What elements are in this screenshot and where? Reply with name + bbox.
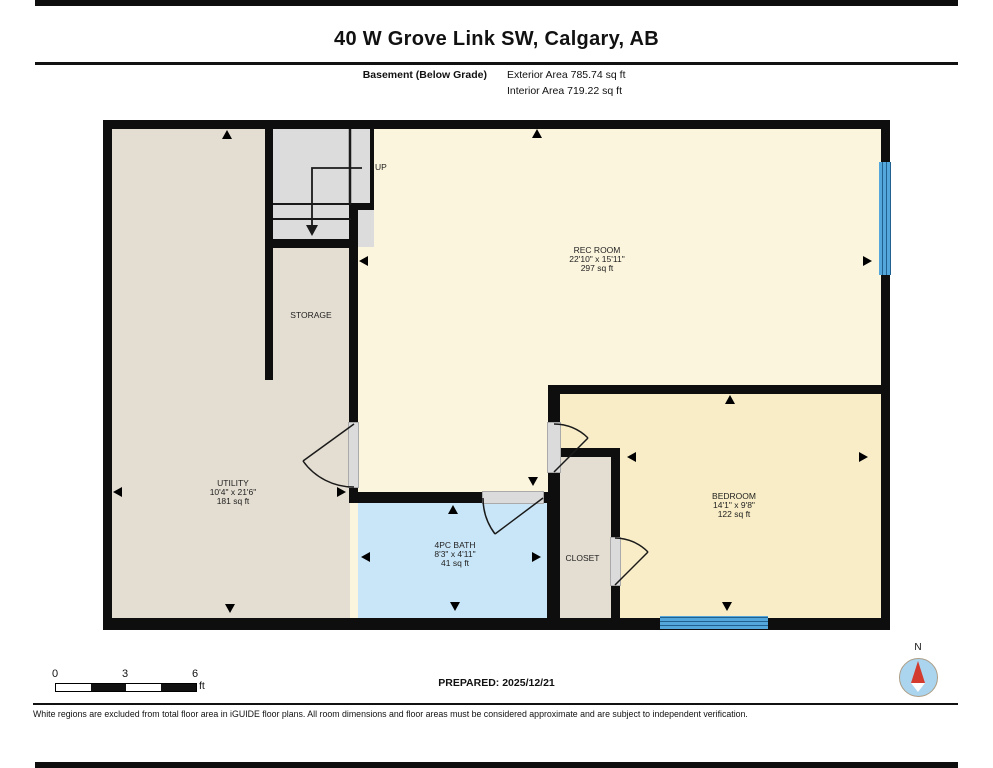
stairs-up-label: UP [375, 163, 405, 172]
bottom-border-bar [35, 762, 958, 768]
room-area: 297 sq ft [517, 264, 677, 273]
dimension-arrow-icon [225, 604, 235, 613]
dimension-arrow-icon [450, 602, 460, 611]
room-area: 181 sq ft [173, 497, 293, 506]
compass-north-label: N [903, 642, 933, 653]
room-name: STORAGE [271, 311, 351, 320]
dimension-arrow-icon [863, 256, 872, 266]
dimension-arrow-icon [528, 477, 538, 486]
room-name: CLOSET [555, 554, 610, 563]
floor-plan-page: 40 W Grove Link SW, Calgary, AB Basement… [0, 0, 993, 768]
closet-label: CLOSET [555, 554, 610, 563]
dimension-arrow-icon [627, 452, 636, 462]
dimension-arrow-icon [722, 602, 732, 611]
utility-label: UTILITY 10'4" x 21'6" 181 sq ft [173, 479, 293, 506]
dimension-arrow-icon [359, 256, 368, 266]
dimension-arrow-icon [448, 505, 458, 514]
plan-annotations [0, 0, 993, 768]
dimension-arrow-icon [337, 487, 346, 497]
footer-rule [33, 703, 958, 705]
bath-label: 4PC BATH 8'3" x 4'11" 41 sq ft [395, 541, 515, 568]
bedroom-label: BEDROOM 14'1" x 9'8" 122 sq ft [674, 492, 794, 519]
dimension-arrow-icon [725, 395, 735, 404]
rec-room-label: REC ROOM 22'10" x 15'11" 297 sq ft [517, 246, 677, 273]
dimension-arrow-icon [859, 452, 868, 462]
stairs-up-arrow-icon [306, 168, 362, 236]
dimension-arrow-icon [113, 487, 122, 497]
dimension-arrow-icon [361, 552, 370, 562]
disclaimer-text: White regions are excluded from total fl… [33, 709, 963, 719]
room-area: 41 sq ft [395, 559, 515, 568]
compass-needle-south [911, 683, 925, 692]
storage-label: STORAGE [271, 311, 351, 320]
compass-needle-north [911, 661, 925, 683]
dimension-arrow-icon [222, 130, 232, 139]
prepared-date: PREPARED: 2025/12/21 [0, 677, 993, 689]
room-area: 122 sq ft [674, 510, 794, 519]
dimension-arrow-icon [532, 129, 542, 138]
dimension-arrow-icon [532, 552, 541, 562]
